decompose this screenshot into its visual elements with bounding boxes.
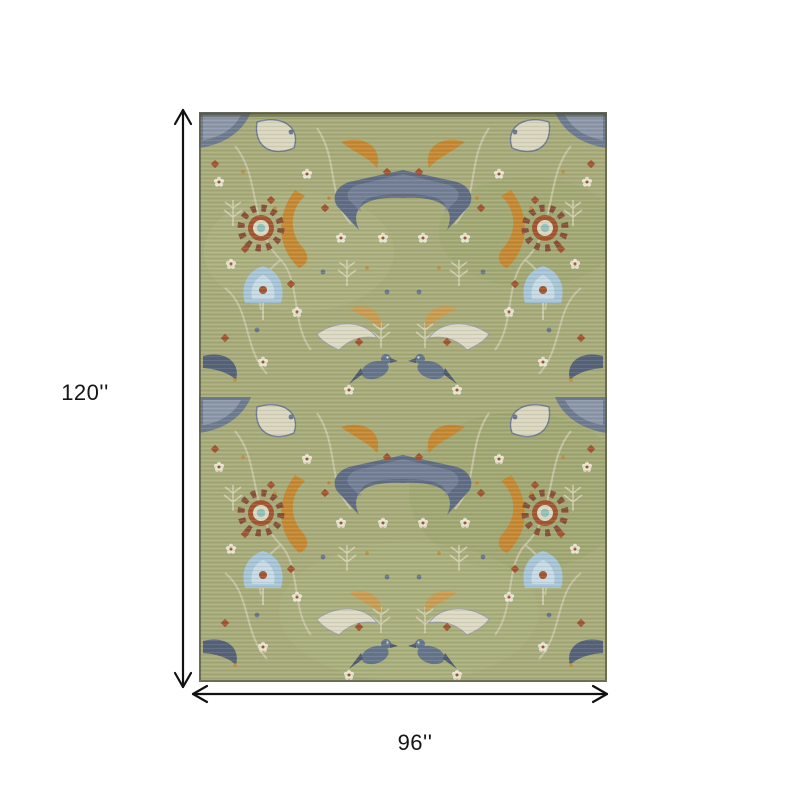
width-dimension-label: 96'' (375, 730, 455, 756)
dimension-diagram: 120'' 96'' (0, 0, 800, 800)
height-dimension-label: 120'' (45, 380, 125, 406)
rug-image (199, 112, 607, 682)
rug-texture (199, 112, 607, 682)
width-dimension-arrow (186, 680, 614, 708)
height-dimension-arrow (169, 103, 197, 695)
